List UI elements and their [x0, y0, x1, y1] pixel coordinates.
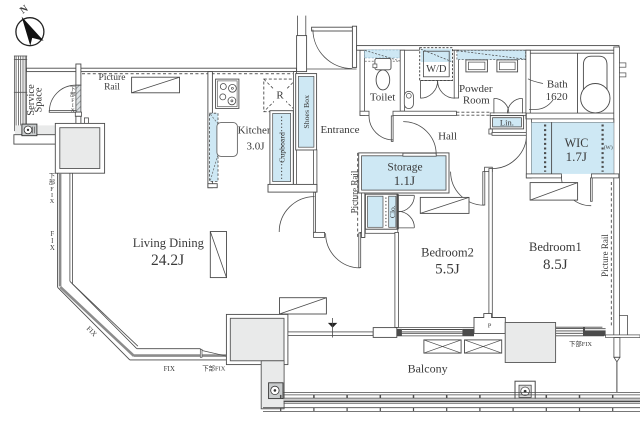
svg-text:WIC: WIC [565, 136, 589, 150]
svg-text:下部FIX: 下部FIX [569, 339, 592, 348]
svg-text:3.0J: 3.0J [246, 141, 265, 153]
svg-text:1.7J: 1.7J [566, 149, 587, 164]
svg-text:下部FIX: 下部FIX [49, 173, 55, 205]
svg-text:Picture Rail: Picture Rail [350, 170, 360, 213]
svg-text:8.5J: 8.5J [543, 257, 568, 273]
svg-text:Picture: Picture [99, 73, 126, 83]
svg-text:5.5J: 5.5J [435, 261, 460, 277]
svg-text:Picture Rail: Picture Rail [600, 234, 610, 277]
svg-text:下部FIX: 下部FIX [70, 86, 76, 114]
svg-text:FIX: FIX [50, 231, 55, 252]
svg-text:N: N [18, 3, 31, 17]
svg-text:Bedroom1: Bedroom1 [529, 240, 582, 254]
svg-text:1.1J: 1.1J [394, 173, 415, 188]
svg-text:R: R [276, 90, 284, 102]
svg-text:1620: 1620 [546, 91, 569, 103]
svg-text:Living Dining: Living Dining [133, 236, 205, 250]
svg-text:24.2J: 24.2J [151, 252, 184, 269]
svg-text:Shoes Box: Shoes Box [302, 95, 311, 129]
svg-text:Bedroom2: Bedroom2 [421, 246, 474, 260]
svg-text:Bath: Bath [547, 78, 568, 90]
svg-text:Powder: Powder [459, 83, 493, 95]
svg-text:下部FIX: 下部FIX [202, 363, 225, 372]
svg-text:Cupboard: Cupboard [278, 132, 287, 163]
svg-text:P: P [488, 322, 492, 329]
svg-text:Lin.: Lin. [500, 118, 514, 128]
svg-text:Entrance: Entrance [320, 124, 359, 136]
svg-text:Toilet: Toilet [370, 91, 396, 103]
svg-text:Room: Room [463, 95, 490, 107]
svg-text:Space: Space [34, 87, 45, 112]
svg-text:Rail: Rail [104, 83, 120, 93]
svg-text:FIX: FIX [164, 365, 175, 373]
svg-text:Hall: Hall [438, 130, 457, 142]
svg-text:Clo.: Clo. [388, 205, 397, 218]
svg-text:Storage: Storage [387, 162, 422, 174]
svg-text:(W): (W) [604, 144, 613, 151]
svg-text:Kitchen: Kitchen [238, 125, 273, 137]
svg-text:W/D: W/D [426, 64, 447, 75]
svg-text:Balcony: Balcony [408, 361, 448, 375]
